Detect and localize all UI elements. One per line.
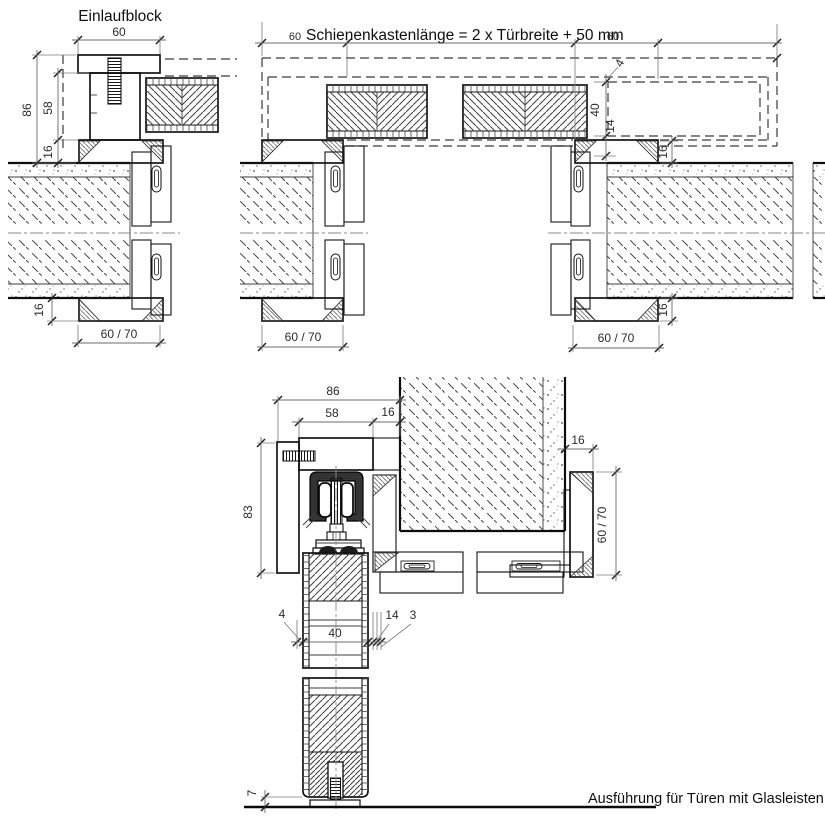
dim-label: 7 <box>245 789 259 796</box>
dim-label: 40 <box>328 626 342 640</box>
dim-label: 16 <box>656 145 670 159</box>
dim-label: 4 <box>279 607 286 621</box>
technical-drawing: Einlaufblock 60 86 58 16 16 60 / 70 <box>0 0 825 825</box>
dim-label: 60 <box>112 25 126 39</box>
dim-label: 60 <box>607 31 619 43</box>
dim-label: 60 / 70 <box>598 331 635 345</box>
fixing-screw <box>108 58 121 104</box>
dim-label: 3 <box>410 608 417 622</box>
pelmet-screw <box>283 451 315 461</box>
pelmet-board <box>277 442 299 573</box>
dim-label: 58 <box>325 406 339 420</box>
dim-label: 40 <box>588 103 602 117</box>
jamb-right <box>548 140 825 321</box>
dim-label: 86 <box>20 103 34 117</box>
head-lining <box>373 552 583 593</box>
dim-label: 16 <box>656 303 670 317</box>
dim-label: 86 <box>326 384 340 398</box>
einlaufblock-title: Einlaufblock <box>78 8 162 25</box>
dim-label: 16 <box>571 433 585 447</box>
dim-label: 14 <box>385 608 399 622</box>
rail-formula-label: Schienenkastenlänge = 2 x Türbreite + 50… <box>306 27 624 44</box>
dim-label: 14 <box>603 119 617 133</box>
dim-label: 60 <box>289 31 301 43</box>
slot-screw <box>152 254 161 280</box>
dim-label: 58 <box>41 101 55 115</box>
plan-section: 60 Schienenkastenlänge = 2 x Türbreite +… <box>240 22 825 352</box>
detail-einlaufblock: Einlaufblock 60 86 58 16 16 60 / 70 <box>8 8 237 347</box>
dim-label: 83 <box>241 505 255 519</box>
dim-label: 16 <box>381 405 395 419</box>
dim-label: 60 / 70 <box>595 506 609 543</box>
slot-screw <box>152 166 161 192</box>
door-bracket <box>313 540 364 554</box>
door-leaf-section <box>303 553 368 807</box>
door-leaf-plan <box>327 85 587 138</box>
dim-label: 16 <box>32 303 46 317</box>
drawing-page: Einlaufblock 60 86 58 16 16 60 / 70 <box>0 0 825 825</box>
dim-label: 60 / 70 <box>285 330 322 344</box>
wall-vertical <box>400 377 565 531</box>
vertical-section: 86 58 16 83 16 60 / 70 4 40 14 3 7 Ausf <box>241 377 824 813</box>
jamb-left <box>240 140 368 321</box>
footer-note: Ausführung für Türen mit Glasleisten <box>588 791 824 807</box>
dim-label: 60 / 70 <box>101 327 138 341</box>
dim-label: 16 <box>41 145 55 159</box>
frame-lining-boards <box>132 146 171 315</box>
door-leaf-plan-stub <box>146 78 218 132</box>
